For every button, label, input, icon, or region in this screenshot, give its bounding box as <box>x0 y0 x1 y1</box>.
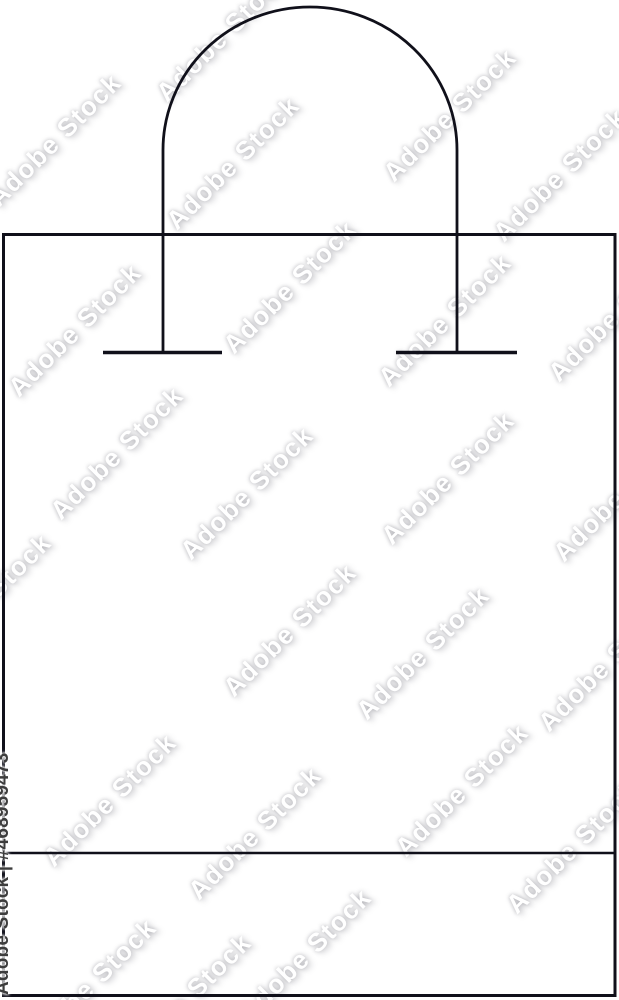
shopping-bag-line-drawing <box>0 0 619 1000</box>
stock-image-preview: Adobe StockAdobe StockAdobe StockAdobe S… <box>0 0 619 1000</box>
bag-body <box>4 235 616 996</box>
watermark-attribution-text: Adobe Stock | #468959473 <box>0 753 14 995</box>
bag-handle <box>163 7 457 353</box>
